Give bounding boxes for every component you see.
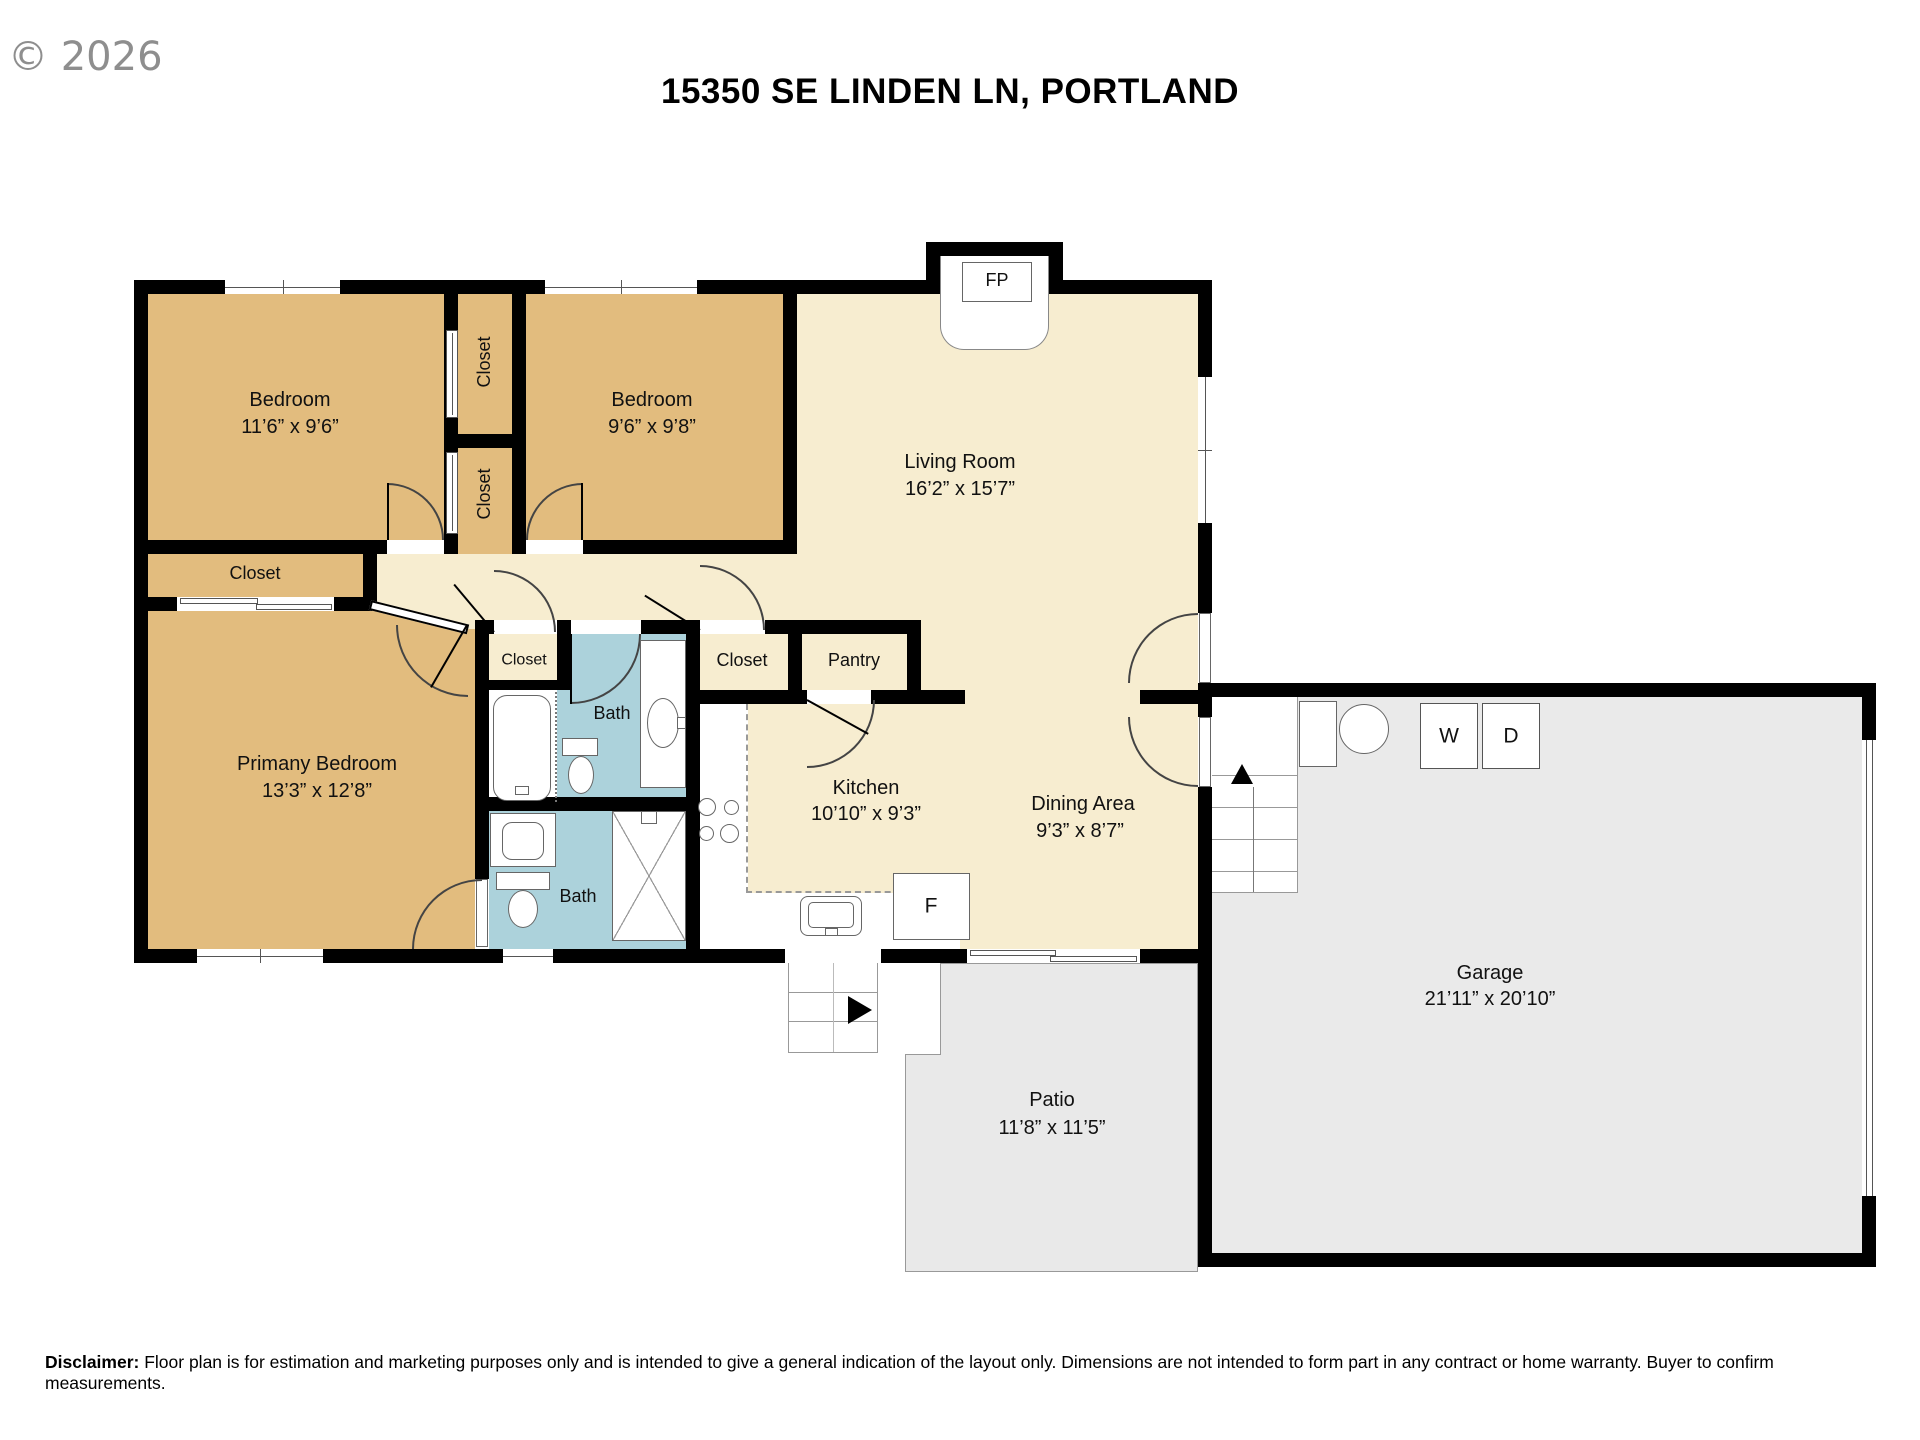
sink-faucet-icon [677, 717, 686, 729]
wall-fireplace [1049, 242, 1063, 294]
room-dims: 16’2” x 15’7” [905, 477, 1015, 501]
shower-icon [612, 811, 686, 941]
closet-slider-pane [256, 604, 332, 610]
wall [557, 620, 571, 690]
room-label: Patio [1029, 1088, 1075, 1112]
toilet-tank-icon [562, 738, 598, 756]
wall-garage [1212, 1253, 1876, 1267]
window [503, 949, 553, 963]
stairs-up-arrow-icon [1231, 764, 1253, 784]
room-patio-lower [905, 1054, 1198, 1272]
closet-label: Closet [229, 563, 280, 585]
window [197, 949, 323, 963]
wall-garage-door-post [1862, 683, 1876, 740]
closet-label: Closet [474, 336, 496, 387]
wall [512, 294, 526, 554]
wall [475, 622, 489, 879]
wall [148, 597, 177, 611]
stove-burner-icon [724, 800, 739, 815]
room-dims: 10’10” x 9’3” [811, 802, 921, 826]
closet-slider-pane [446, 330, 458, 418]
door-opening [785, 949, 881, 963]
room-patio [940, 963, 1198, 1055]
sink-icon [647, 698, 679, 748]
sliding-door-pane [970, 950, 1056, 956]
front-door-slab [1199, 613, 1211, 683]
room-label: Dining Area [1031, 792, 1134, 816]
fridge-label: F [925, 893, 938, 918]
wall [1063, 280, 1212, 294]
tub-faucet-icon [515, 786, 529, 795]
pantry-label: Pantry [828, 650, 880, 672]
washer-label: W [1439, 723, 1459, 748]
bath-label: Bath [593, 703, 630, 725]
disclaimer-text: Floor plan is for estimation and marketi… [45, 1352, 1774, 1393]
room-label: Living Room [904, 450, 1015, 474]
furnace-box [1299, 701, 1337, 767]
room-label: Bedroom [611, 388, 692, 412]
shower-head-icon [641, 811, 657, 824]
window [225, 280, 340, 294]
page-title: 15350 SE LINDEN LN, PORTLAND [134, 72, 1766, 112]
floor-plan: © 2026 15350 SE LINDEN LN, PORTLAND [0, 0, 1920, 1440]
window [545, 280, 697, 294]
door-slab [1199, 717, 1211, 787]
room-dims: 9’3” x 8’7” [1036, 819, 1124, 843]
window [1198, 377, 1212, 523]
wall [1140, 690, 1198, 704]
wall [686, 690, 807, 704]
wall [134, 280, 148, 963]
wall [489, 680, 557, 690]
step-direction-arrow-icon [848, 996, 872, 1024]
shower-curtain-icon [555, 692, 557, 802]
room-dims: 11’8” x 11’5” [998, 1116, 1105, 1140]
kitchen-sink-basin-icon [808, 902, 854, 928]
room-dims: 9’6” x 9’8” [608, 415, 696, 439]
door-leaf [570, 634, 572, 704]
wall-garage [1212, 683, 1876, 697]
room-label: Garage [1457, 961, 1524, 985]
closet-slider-pane [446, 452, 458, 534]
sink-icon [502, 822, 544, 860]
room-label: Bedroom [249, 388, 330, 412]
sink-faucet-icon [825, 928, 838, 936]
stairs [1212, 697, 1298, 893]
toilet-bowl-icon [508, 890, 538, 928]
wall-garage-door-post [1862, 1196, 1876, 1267]
counter-edge [746, 704, 748, 893]
door-opening [526, 540, 583, 554]
toilet-bowl-icon [568, 756, 594, 794]
dryer-label: D [1503, 723, 1518, 748]
stove-burner-icon [699, 826, 714, 841]
wall [583, 540, 797, 554]
wall [444, 434, 526, 448]
door-leaf [581, 483, 583, 540]
disclaimer: Disclaimer: Floor plan is for estimation… [45, 1352, 1895, 1394]
stove-burner-icon [720, 824, 739, 843]
wall [783, 294, 797, 554]
sliding-door-pane [1050, 956, 1137, 962]
door-leaf [387, 483, 389, 540]
disclaimer-label: Disclaimer: [45, 1352, 139, 1372]
fireplace-label: FP [985, 270, 1008, 292]
room-dims: 13’3” x 12’8” [262, 779, 372, 803]
garage-door [1866, 740, 1873, 1196]
patio-notch-edge [905, 1054, 941, 1055]
toilet-tank-icon [496, 872, 550, 890]
door-opening [387, 540, 444, 554]
room-dims: 11’6” x 9’6” [241, 415, 338, 439]
room-label: Primany Bedroom [237, 752, 397, 776]
wall [148, 540, 387, 554]
closet-label: Closet [501, 650, 546, 669]
room-dims: 21’11” x 20’10” [1425, 987, 1556, 1011]
wall [686, 620, 700, 811]
closet-label: Closet [474, 468, 496, 519]
closet-label: Closet [716, 650, 767, 672]
wall [871, 690, 965, 704]
room-garage [1212, 697, 1862, 1253]
closet-slider-pane [180, 598, 258, 604]
room-label: Kitchen [833, 776, 900, 800]
water-heater-icon [1339, 704, 1389, 754]
wall-fireplace [926, 242, 1063, 256]
door-opening [571, 620, 641, 634]
bath-label: Bath [559, 886, 596, 908]
wall [686, 811, 700, 949]
stove-burner-icon [698, 798, 716, 816]
